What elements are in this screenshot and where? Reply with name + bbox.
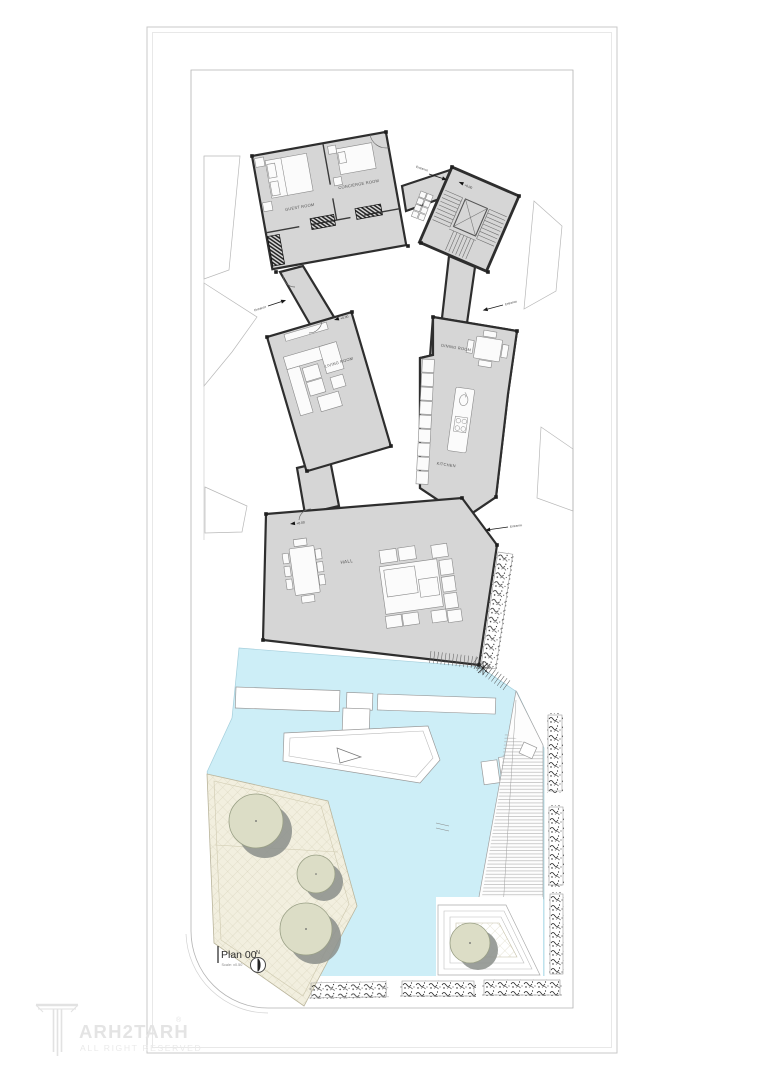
planter-strip xyxy=(548,805,564,887)
watermark-tagline: ALL RIGHT RESERVED xyxy=(80,1043,202,1053)
planter-strip xyxy=(482,979,562,996)
patio-southeast xyxy=(436,897,543,976)
planter-strip xyxy=(549,892,564,976)
watermark-brand: ARH2TARH xyxy=(79,1021,189,1042)
planter-strip xyxy=(309,981,388,999)
pillar-logo-icon xyxy=(36,1005,78,1056)
entrance-arrow-icon: Entrance xyxy=(254,298,287,312)
living-room-block: LIVING ROOM xyxy=(267,312,391,471)
entrance-arrow-icon: Entrance xyxy=(482,299,517,312)
plan-title: Plan 00 xyxy=(221,949,257,961)
title-block: Plan 00 Scale: x0.50 N xyxy=(218,946,266,973)
entrance-arrow-icon: Entrance xyxy=(485,523,523,532)
plan-sheet: GUEST ROOM CONCIERGE ROOM +0.00 xyxy=(0,0,764,1080)
plant-icon xyxy=(476,661,490,675)
entrance-label: Entrance xyxy=(254,305,267,313)
bedroom-block: GUEST ROOM CONCIERGE ROOM xyxy=(252,132,406,269)
building: GUEST ROOM CONCIERGE ROOM +0.00 xyxy=(250,130,521,667)
entrance-label: Entrance xyxy=(504,299,517,306)
entrance-label: Entrance xyxy=(416,165,429,173)
svg-text:N: N xyxy=(256,950,260,956)
corridor-bedroom-living xyxy=(280,266,334,326)
watermark-logo: ARH2TARH ® ALL RIGHT RESERVED xyxy=(36,1005,202,1056)
plan-scale: Scale: x0.50 xyxy=(222,963,243,967)
entrance-label: Entrance xyxy=(510,523,523,529)
watermark-registered: ® xyxy=(176,1016,182,1024)
planter-strip xyxy=(547,713,563,793)
planter-strip xyxy=(400,980,476,997)
floor-plan-drawing: GUEST ROOM CONCIERGE ROOM +0.00 xyxy=(0,0,764,1080)
